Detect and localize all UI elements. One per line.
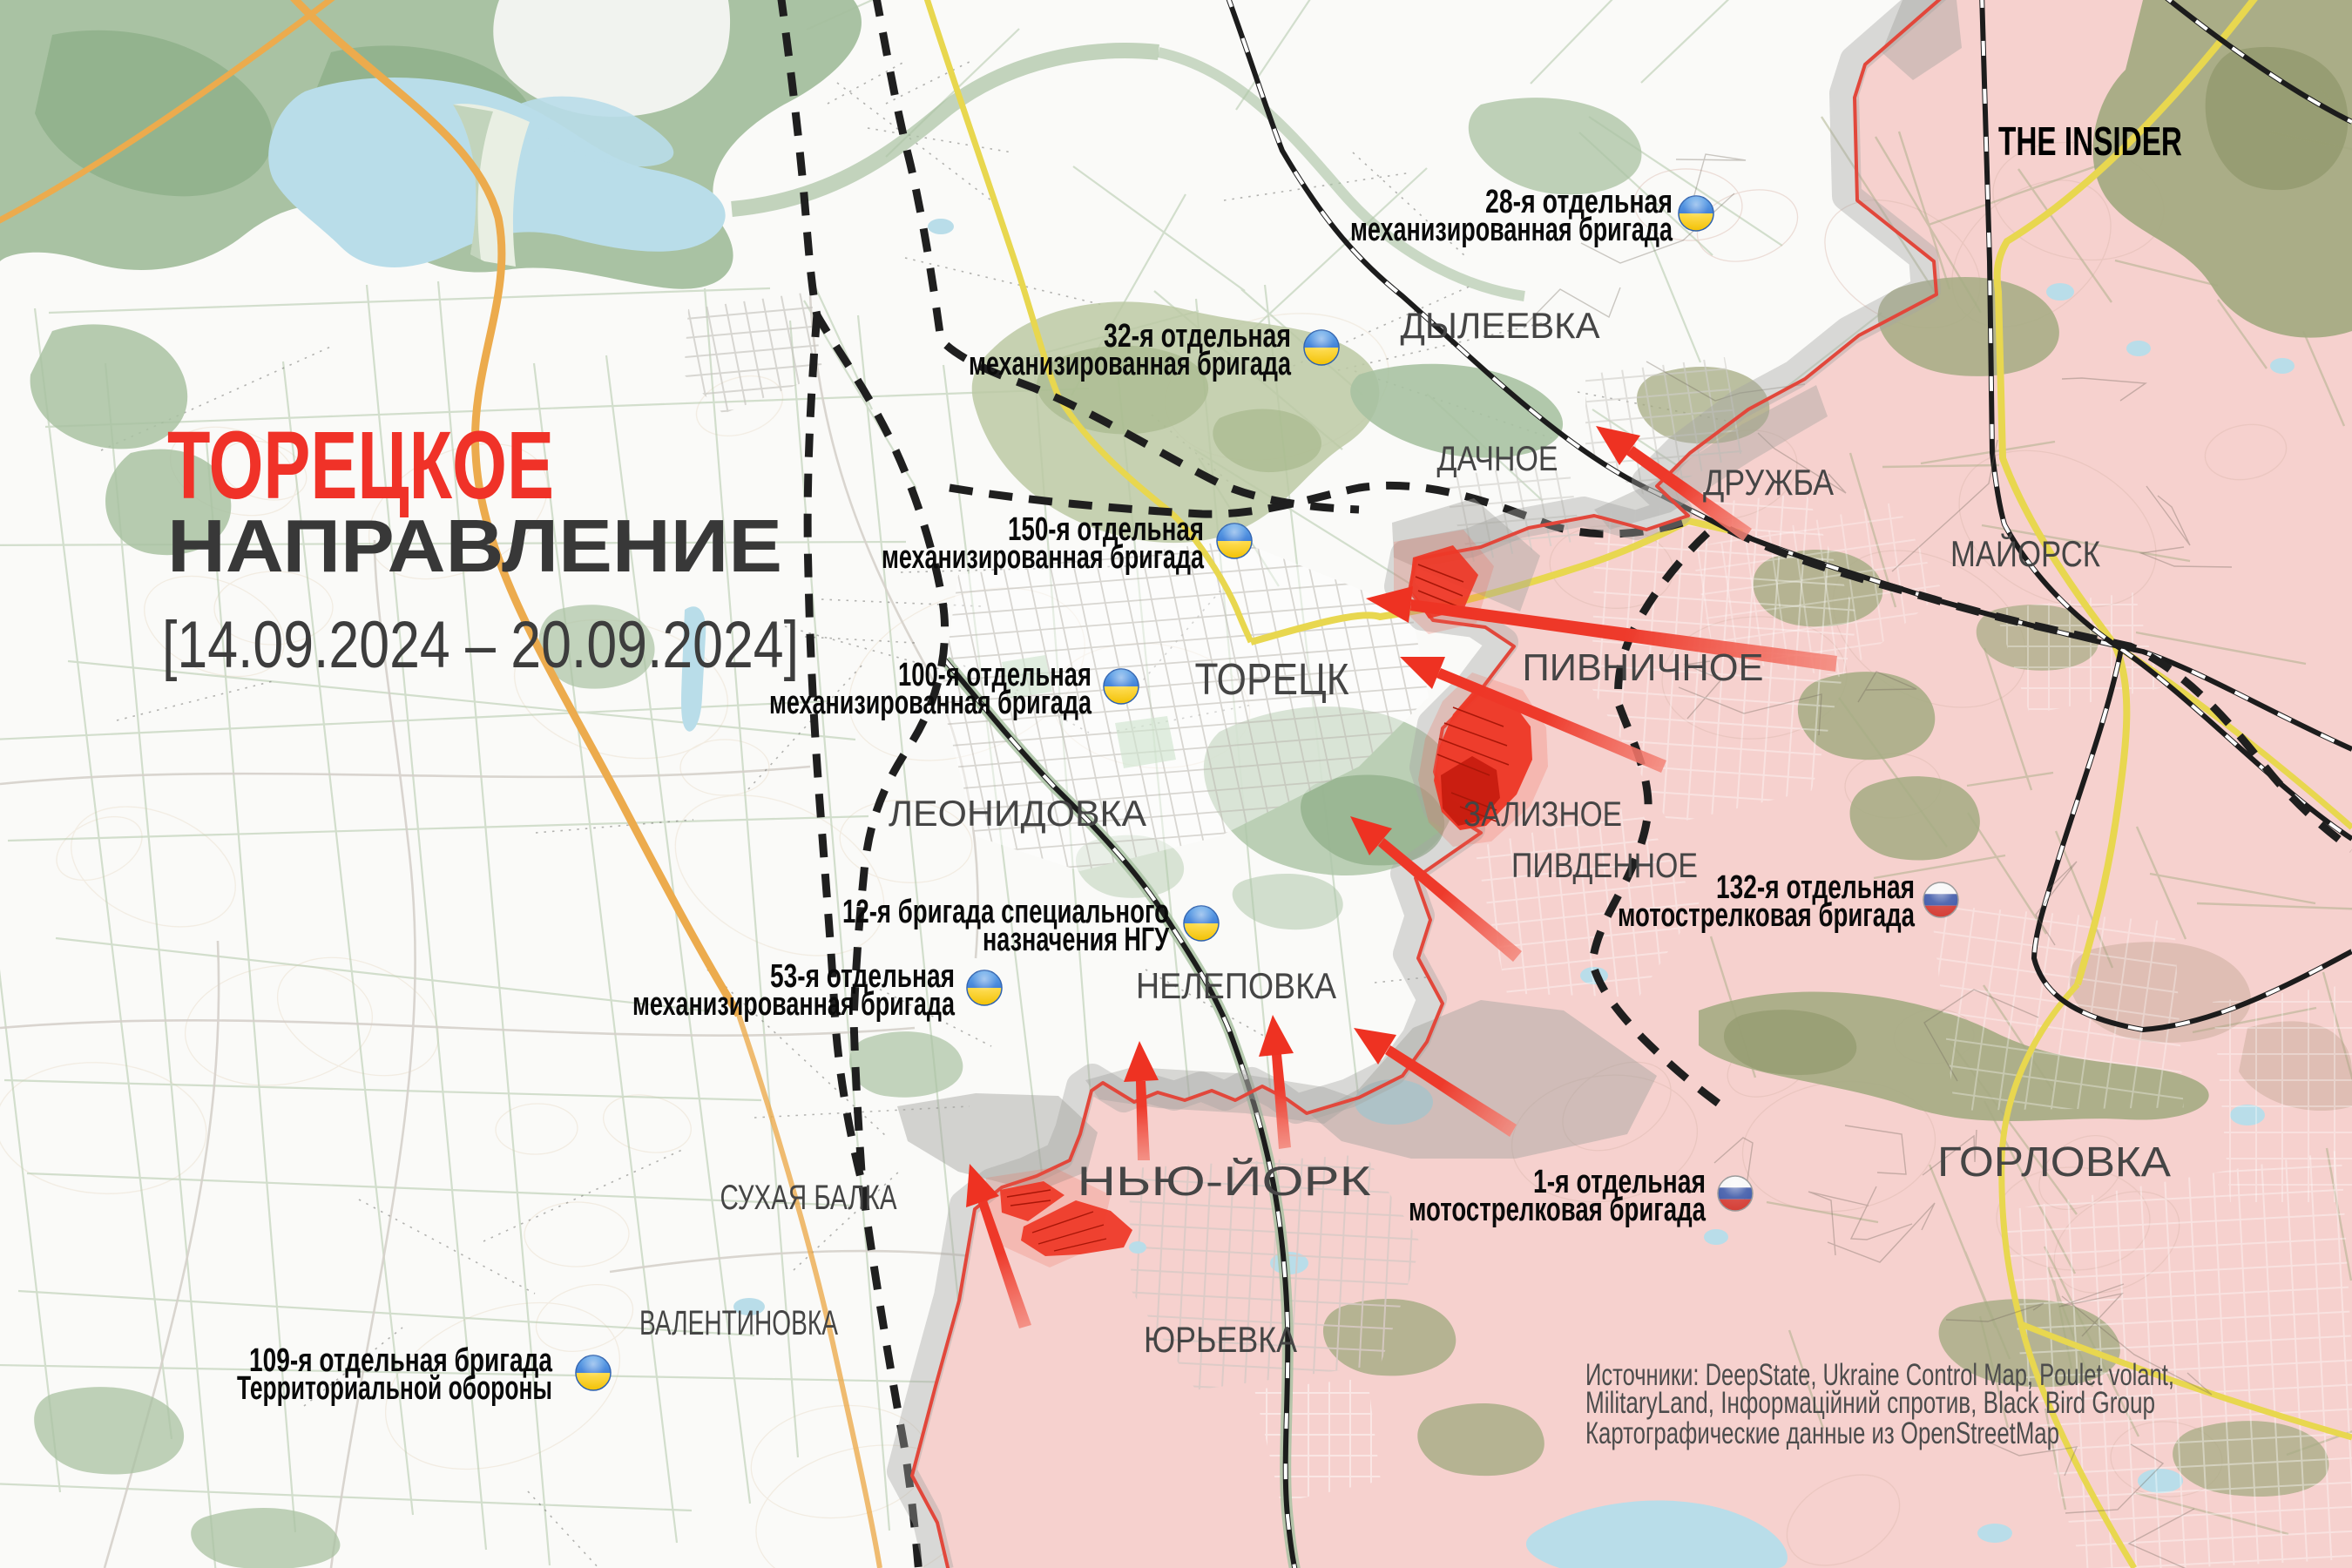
svg-text:Территориальной обороны: Территориальной обороны [237, 1370, 552, 1407]
svg-text:ДАЧНОЕ: ДАЧНОЕ [1437, 440, 1558, 478]
svg-text:ДЫЛЕЕВКА: ДЫЛЕЕВКА [1401, 305, 1600, 346]
svg-text:назначения НГУ: назначения НГУ [983, 922, 1169, 958]
svg-text:THE INSIDER: THE INSIDER [1998, 118, 2182, 164]
svg-text:механизированная бригада: механизированная бригада [969, 346, 1292, 382]
svg-text:механизированная бригада: механизированная бригада [632, 986, 956, 1023]
svg-text:механизированная бригада: механизированная бригада [882, 539, 1205, 576]
svg-text:ЛЕОНИДОВКА: ЛЕОНИДОВКА [889, 793, 1146, 834]
svg-text:Картографические данные из Ope: Картографические данные из OpenStreetMap [1585, 1416, 2059, 1450]
svg-text:НЬЮ-ЙОРК: НЬЮ-ЙОРК [1078, 1158, 1372, 1204]
svg-text:ТОРЕЦК: ТОРЕЦК [1195, 654, 1349, 704]
svg-text:MilitaryLand, Інформаційний сп: MilitaryLand, Інформаційний спротив, Bla… [1585, 1386, 2155, 1420]
svg-text:механизированная бригада: механизированная бригада [769, 685, 1092, 721]
svg-text:ТОРЕЦКОЕ: ТОРЕЦКОЕ [167, 412, 554, 519]
svg-text:ПИВДЕННОЕ: ПИВДЕННОЕ [1511, 847, 1698, 885]
svg-text:мотострелковая бригада: мотострелковая бригада [1618, 897, 1916, 934]
svg-text:ВАЛЕНТИНОВКА: ВАЛЕНТИНОВКА [639, 1304, 838, 1342]
svg-text:механизированная бригада: механизированная бригада [1350, 212, 1673, 248]
svg-text:НАПРАВЛЕНИЕ: НАПРАВЛЕНИЕ [167, 505, 782, 588]
svg-text:ЮРЬЕВКА: ЮРЬЕВКА [1144, 1319, 1297, 1360]
svg-text:ГОРЛОВКА: ГОРЛОВКА [1937, 1139, 2171, 1186]
svg-text:[14.09.2024 – 20.09.2024]: [14.09.2024 – 20.09.2024] [162, 608, 799, 682]
svg-text:ЗАЛИЗНОЕ: ЗАЛИЗНОЕ [1463, 795, 1622, 834]
svg-text:НЕЛЕПОВКА: НЕЛЕПОВКА [1136, 965, 1336, 1006]
svg-text:мотострелковая бригада: мотострелковая бригада [1409, 1192, 1707, 1228]
svg-text:СУХАЯ БАЛКА: СУХАЯ БАЛКА [720, 1179, 897, 1217]
svg-text:ПИВНИЧНОЕ: ПИВНИЧНОЕ [1523, 646, 1764, 689]
svg-text:МАЙОРСК: МАЙОРСК [1950, 532, 2100, 574]
svg-text:ДРУЖБА: ДРУЖБА [1703, 462, 1834, 503]
